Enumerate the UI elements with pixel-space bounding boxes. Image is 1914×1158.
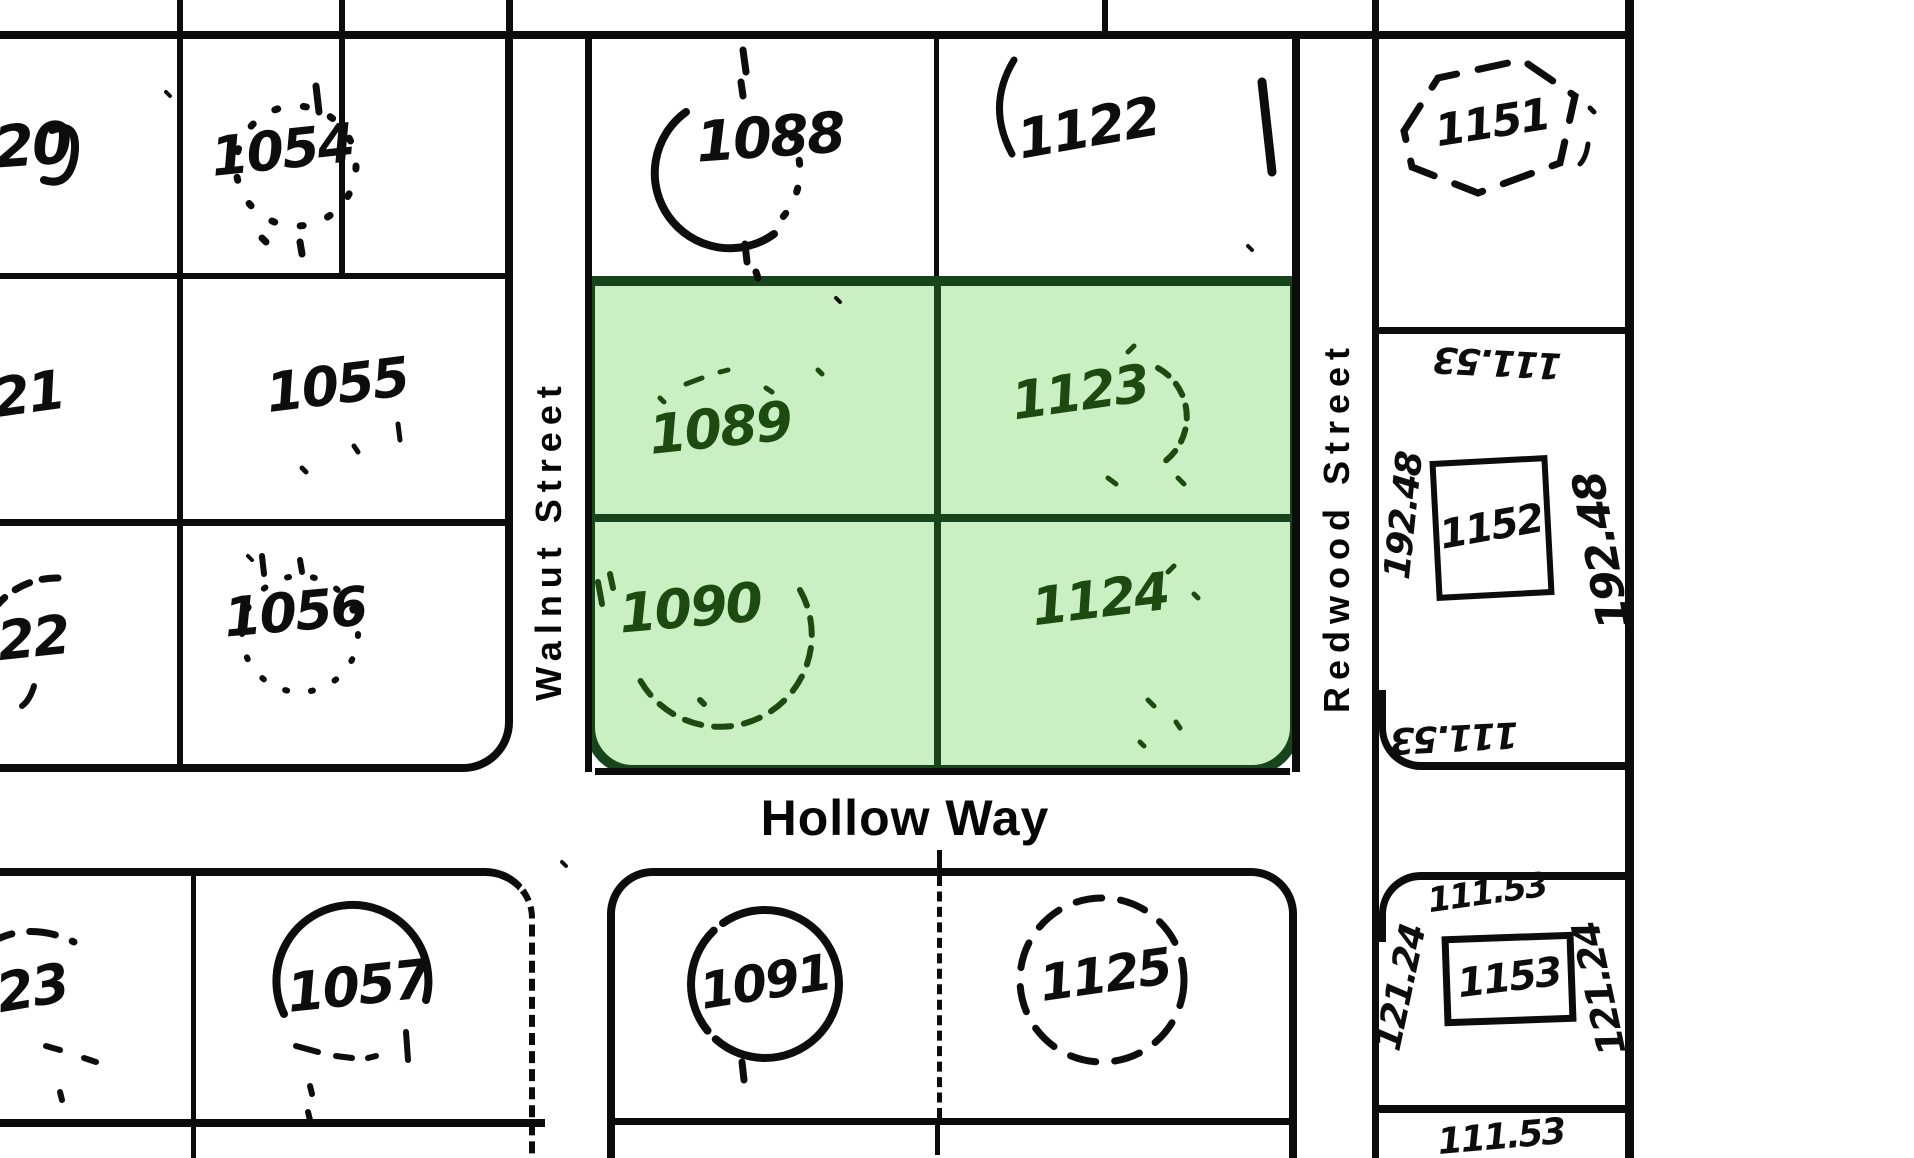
lot-line-row1 — [0, 273, 513, 279]
block-lower-left-bottom-line — [0, 1119, 545, 1127]
lot-line-vertical-a — [177, 0, 183, 772]
redwood-east-line — [1372, 0, 1379, 1158]
block-lower-left-outline — [0, 868, 535, 1158]
lot-line-1091-1125-dashed — [937, 876, 942, 1118]
block-lower-middle-inner-line — [611, 1118, 1293, 1125]
measurement-1152-top: 111.53 — [1434, 338, 1563, 386]
lot-line-row2 — [0, 519, 513, 526]
street-label-walnut: Walnut Street — [528, 379, 570, 701]
street-label-redwood: Redwood Street — [1316, 341, 1358, 713]
lot-line-tick-top — [937, 850, 942, 874]
lot-label-22: 22 — [0, 603, 72, 673]
lot-label-20: 20 — [0, 108, 73, 181]
measurement-1153-bottom: 111.53 — [1436, 1111, 1566, 1158]
lot-line-1088-1122 — [934, 31, 939, 276]
plat-map: Walnut Street Redwood Street Hollow Way … — [0, 0, 1914, 1158]
street-label-hollow: Hollow Way — [761, 789, 1050, 847]
stub-line-2 — [1102, 0, 1108, 31]
lot-label-1090: 1090 — [616, 570, 763, 645]
lot-label-1088: 1088 — [694, 100, 846, 175]
lot-region-1151[interactable] — [1375, 31, 1630, 330]
north-boundary-walnut-gap — [505, 31, 590, 39]
block-upper-middle-bottom-line — [595, 768, 1290, 775]
lot-1153-south-line — [1372, 1105, 1634, 1113]
lot-label-1056: 1056 — [221, 574, 368, 649]
lot-1151-south-line — [1375, 327, 1630, 334]
measurement-1152-bottom: 111.53 — [1391, 713, 1520, 761]
lot-label-23: 23 — [0, 951, 73, 1025]
lot-line-tick-bottom — [935, 1125, 940, 1155]
stub-line-1 — [506, 0, 513, 31]
lot-label-21: 21 — [0, 358, 68, 430]
lot-line-1023-1057 — [191, 872, 196, 1158]
north-boundary-right — [1297, 31, 1630, 39]
